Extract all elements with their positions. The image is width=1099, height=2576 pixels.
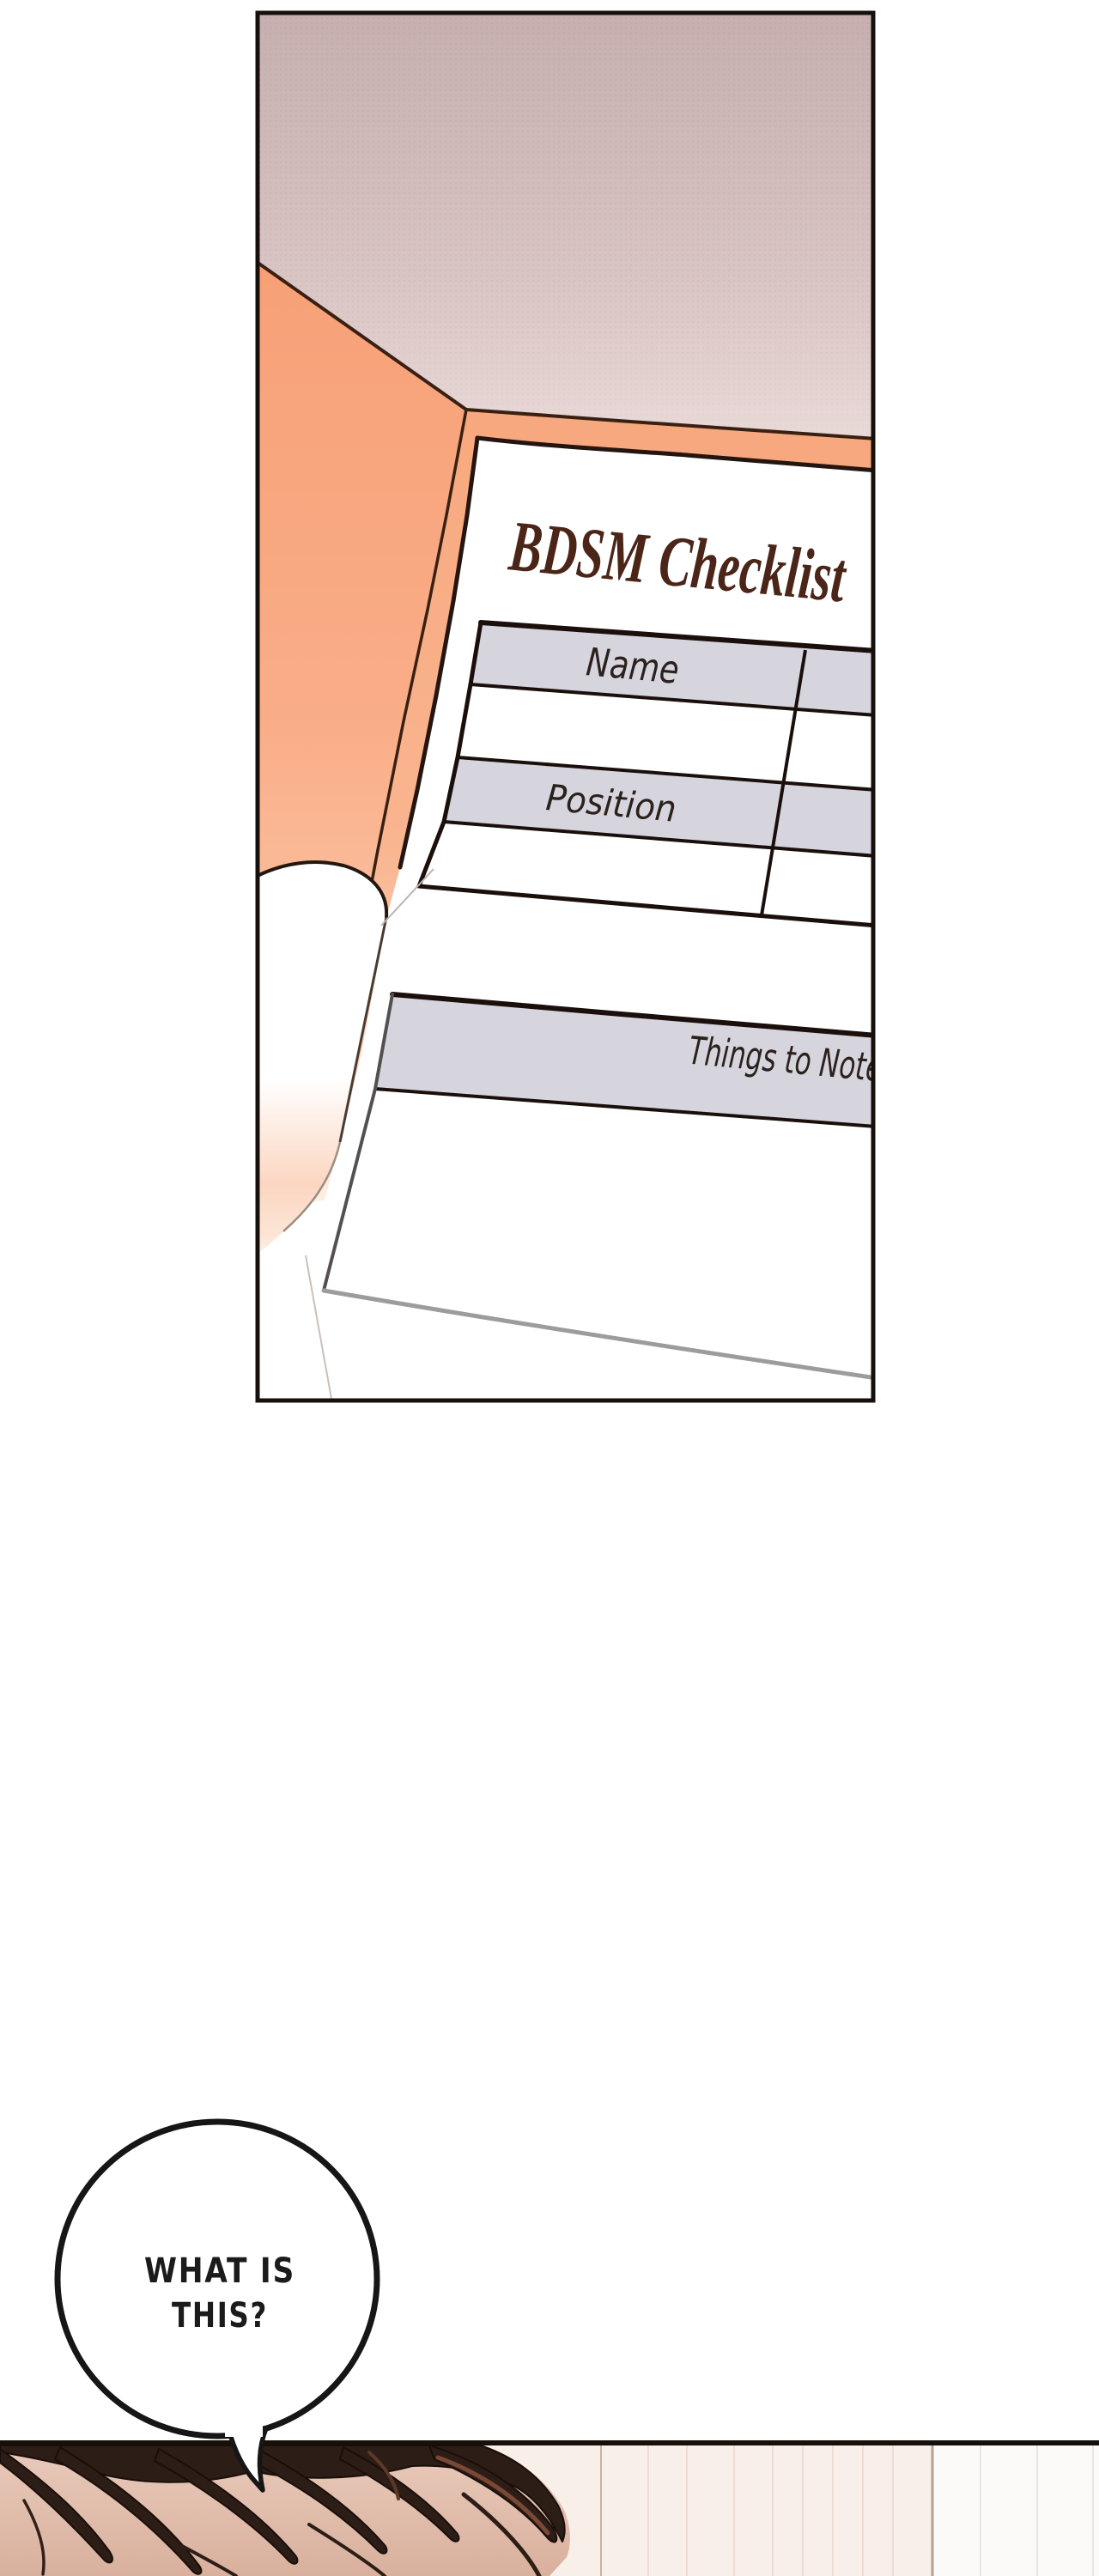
wall-background-right [932, 2445, 1099, 2576]
name-label: Name [585, 639, 681, 693]
top-panel-content: BDSM Checklist Name Position Things to N… [254, 13, 884, 1408]
bottom-panel-content [0, 2443, 1099, 2576]
speech-bubble-group: WHAT IS THIS? [58, 2122, 377, 2490]
comic-page: BDSM Checklist Name Position Things to N… [0, 0, 1099, 2576]
comic-page-canvas: BDSM Checklist Name Position Things to N… [0, 0, 1099, 2576]
bubble-text-line-2: THIS? [172, 2296, 268, 2336]
bubble-tail-joint [225, 2425, 263, 2437]
bubble-text-line-1: WHAT IS [144, 2251, 295, 2291]
